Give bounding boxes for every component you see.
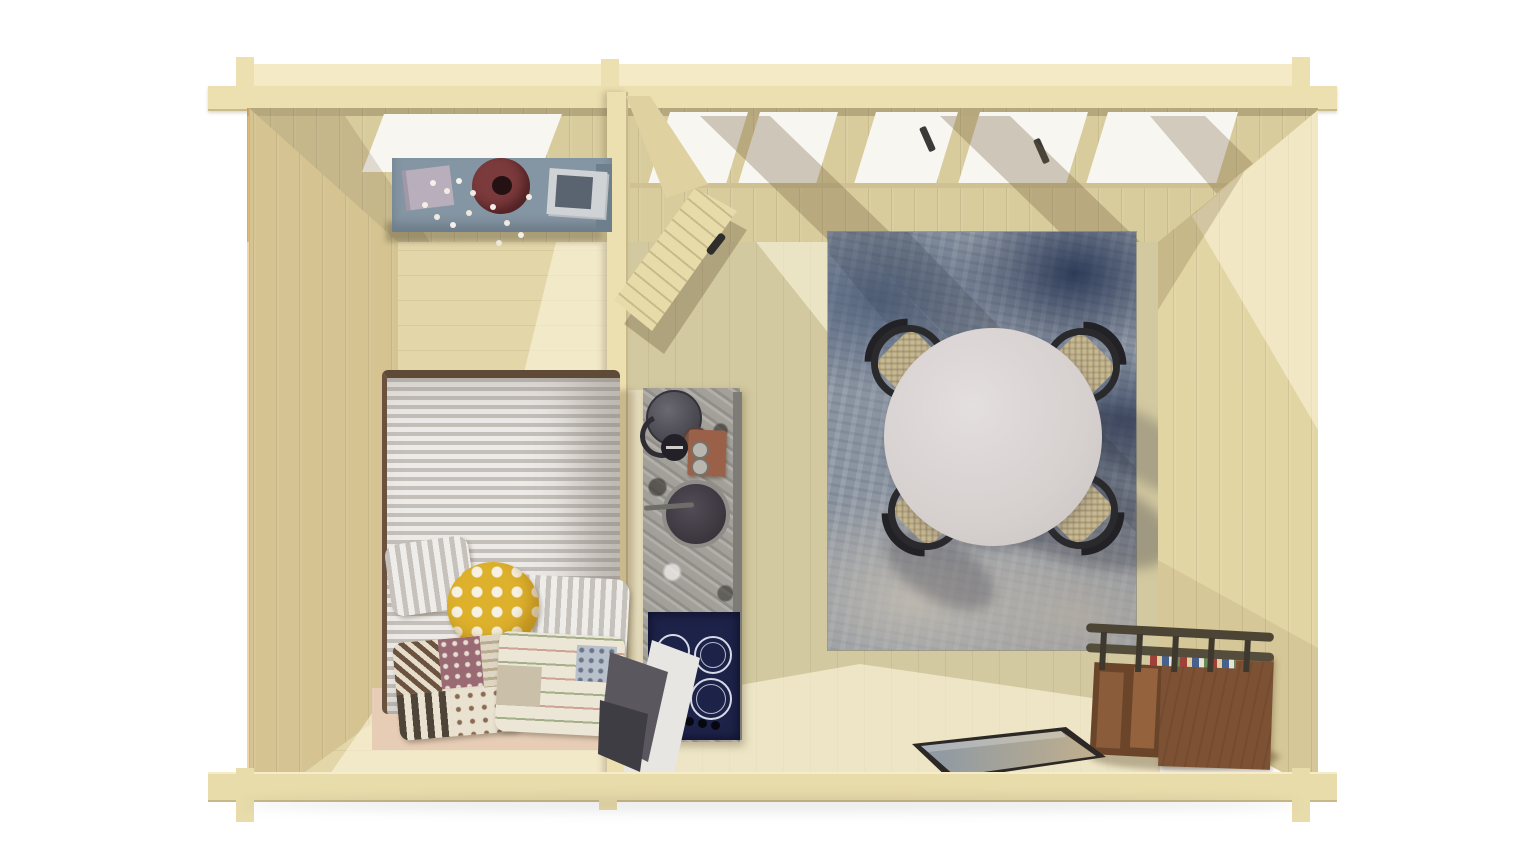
left-wall-bottom-joint bbox=[236, 768, 254, 822]
patch-cell bbox=[396, 691, 454, 742]
patch-cell bbox=[496, 665, 542, 707]
window-sill-strip bbox=[630, 183, 1230, 188]
dining-table bbox=[884, 328, 1102, 546]
left-wall-top-joint bbox=[236, 57, 254, 89]
patch-cell bbox=[392, 639, 442, 695]
grinder-slit bbox=[666, 446, 683, 449]
left-wall-edge-line bbox=[247, 108, 250, 778]
ground-shadow bbox=[240, 796, 1300, 812]
right-wall-top-joint bbox=[1292, 57, 1310, 89]
bench-slat bbox=[1130, 667, 1158, 748]
patch-cell bbox=[438, 636, 484, 689]
spice-jar bbox=[691, 458, 709, 476]
burner-ring bbox=[690, 678, 732, 720]
spice-jar bbox=[691, 441, 709, 459]
cooktop-knob bbox=[711, 721, 720, 730]
magazine-photo bbox=[555, 175, 593, 209]
blossom-branch bbox=[430, 180, 436, 186]
sink bbox=[662, 480, 730, 548]
bench-slat bbox=[1096, 671, 1124, 748]
shelf-book bbox=[402, 165, 455, 211]
right-wall-bottom-joint bbox=[1292, 768, 1310, 822]
cabin-floorplan-render bbox=[0, 0, 1536, 864]
burner-ring bbox=[694, 636, 732, 674]
cooktop-knob bbox=[698, 719, 707, 728]
vase-opening bbox=[492, 176, 512, 195]
divider-wall-top-joint bbox=[601, 59, 619, 89]
